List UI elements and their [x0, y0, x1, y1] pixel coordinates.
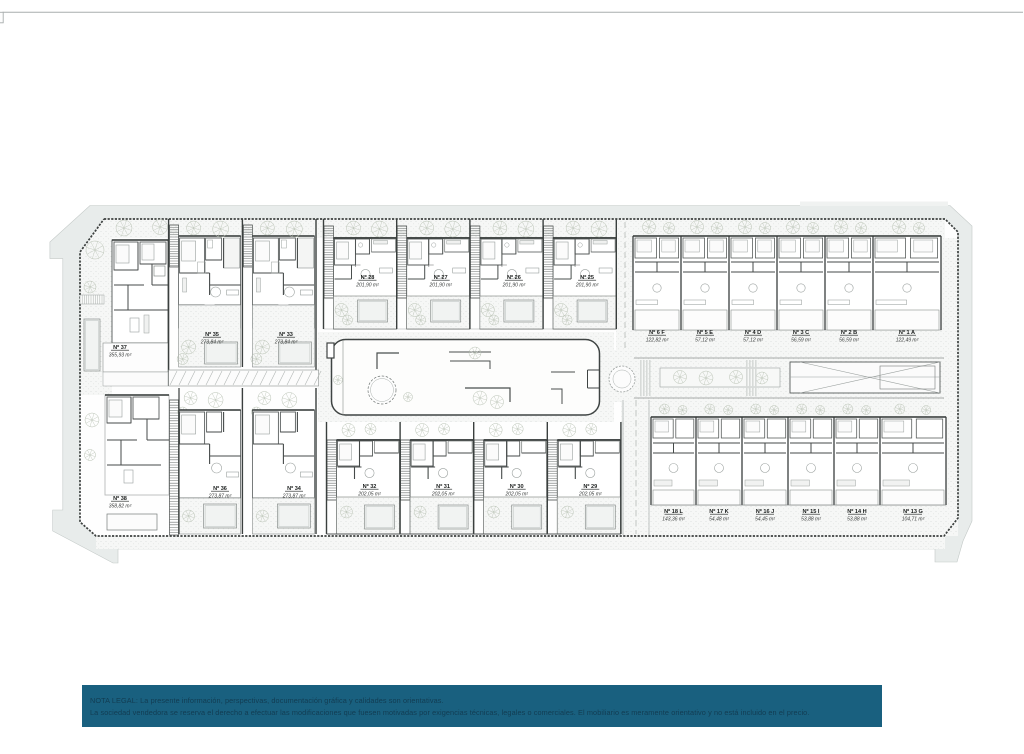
svg-text:53,88 m²: 53,88 m²: [847, 516, 867, 522]
svg-text:202,05 m²: 202,05 m²: [504, 491, 528, 497]
svg-text:201,90 m²: 201,90 m²: [355, 282, 379, 288]
svg-text:104,71 m²: 104,71 m²: [902, 516, 925, 522]
svg-text:54,48 m²: 54,48 m²: [709, 516, 729, 522]
svg-text:201,90 m²: 201,90 m²: [428, 282, 452, 288]
svg-text:57,12 m²: 57,12 m²: [743, 337, 763, 343]
svg-text:202,05 m²: 202,05 m²: [431, 491, 455, 497]
svg-text:358,82 m²: 358,82 m²: [109, 503, 132, 509]
svg-text:273,87 m²: 273,87 m²: [282, 493, 306, 499]
svg-text:202,05 m²: 202,05 m²: [578, 491, 602, 497]
svg-text:273,84 m²: 273,84 m²: [274, 339, 298, 345]
svg-text:202,05 m²: 202,05 m²: [357, 491, 381, 497]
svg-text:56,59 m²: 56,59 m²: [839, 337, 859, 343]
svg-text:201,90 m²: 201,90 m²: [575, 282, 599, 288]
svg-text:54,45 m²: 54,45 m²: [755, 516, 775, 522]
svg-text:355,93 m²: 355,93 m²: [109, 352, 132, 358]
svg-text:56,59 m²: 56,59 m²: [791, 337, 811, 343]
svg-text:53,88 m²: 53,88 m²: [801, 516, 821, 522]
svg-text:122,82 m²: 122,82 m²: [646, 337, 669, 343]
svg-text:273,87 m²: 273,87 m²: [208, 493, 232, 499]
svg-text:143,36 m²: 143,36 m²: [662, 516, 685, 522]
svg-text:273,84 m²: 273,84 m²: [200, 339, 224, 345]
svg-text:57,12 m²: 57,12 m²: [695, 337, 715, 343]
svg-text:122,49 m²: 122,49 m²: [896, 337, 919, 343]
svg-text:201,90 m²: 201,90 m²: [502, 282, 526, 288]
